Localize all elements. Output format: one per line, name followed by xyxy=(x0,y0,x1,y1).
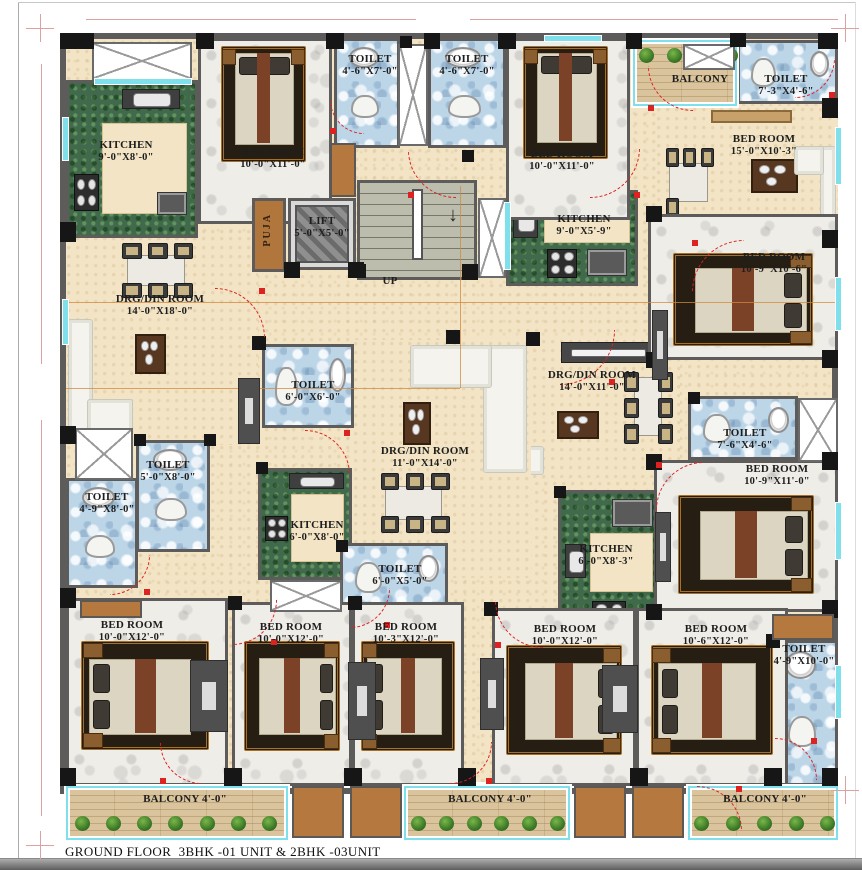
dining-table-set xyxy=(116,243,197,298)
toilet-wc xyxy=(751,58,776,87)
bed-pillow xyxy=(784,303,803,328)
window xyxy=(63,300,68,344)
door-jamb xyxy=(486,778,492,784)
bed-pillow xyxy=(320,664,333,694)
dining-chair xyxy=(701,148,714,167)
room-balcony-mid xyxy=(404,786,570,840)
column xyxy=(822,768,838,786)
window xyxy=(95,79,191,84)
room-toilet-a2 xyxy=(428,38,506,148)
shrub-icon xyxy=(439,816,454,831)
room-puja xyxy=(252,198,286,272)
bed-runner xyxy=(257,53,271,143)
door-jamb xyxy=(495,642,501,648)
shrub-icon xyxy=(75,816,90,831)
dimension-line xyxy=(845,14,846,42)
dimension-line xyxy=(41,64,42,364)
store-block xyxy=(632,786,684,838)
dining-chair xyxy=(431,516,450,533)
column xyxy=(326,33,344,49)
shrub-icon xyxy=(667,48,682,63)
column xyxy=(462,264,478,280)
wash-basin xyxy=(153,449,187,470)
closet-panel xyxy=(398,44,428,146)
closet-panel xyxy=(75,428,133,480)
door-jamb xyxy=(271,639,277,645)
column xyxy=(60,426,76,444)
double-bed xyxy=(244,641,340,751)
column xyxy=(284,262,300,278)
window xyxy=(836,503,841,559)
column xyxy=(498,33,516,49)
column xyxy=(60,33,94,49)
wash-basin xyxy=(418,555,438,582)
bedside-stool xyxy=(790,331,812,344)
bed-pillow xyxy=(662,669,679,699)
coffee-table xyxy=(135,334,166,374)
door-jamb xyxy=(259,288,265,294)
bedside-stool xyxy=(791,578,812,592)
room-toilet-e xyxy=(136,440,210,552)
bed-pillow xyxy=(784,273,803,298)
wash-basin xyxy=(445,47,481,68)
dining-chair xyxy=(658,424,673,443)
dining-chair xyxy=(122,283,141,298)
dining-chair xyxy=(381,473,400,490)
coffee-table xyxy=(557,411,599,439)
bed-pillow xyxy=(93,664,110,693)
shrub-icon xyxy=(639,48,654,63)
shrub-icon xyxy=(550,816,565,831)
room-lift xyxy=(288,198,356,270)
wardrobe-block xyxy=(602,665,638,733)
column xyxy=(60,222,76,242)
column xyxy=(688,392,700,404)
kitchen-counter xyxy=(157,192,187,215)
wash-basin xyxy=(785,651,816,679)
dining-chair xyxy=(406,516,425,533)
shrub-icon xyxy=(231,816,246,831)
door-jamb xyxy=(648,105,654,111)
shrub-icon xyxy=(137,816,152,831)
door-jamb xyxy=(384,622,390,628)
toilet-wc xyxy=(448,95,481,118)
column xyxy=(730,33,746,47)
door-jamb xyxy=(829,92,835,98)
dimension-line xyxy=(845,776,846,804)
shrub-icon xyxy=(168,816,183,831)
corner-sofa xyxy=(68,319,133,441)
shrub-icon xyxy=(522,816,537,831)
column xyxy=(818,33,838,49)
room-drg-din-a xyxy=(66,235,258,445)
toilet-wc xyxy=(275,367,297,406)
bed-runner xyxy=(135,659,155,733)
bedside-stool xyxy=(791,497,812,511)
kitchen-floor-inset xyxy=(590,533,653,593)
shrub-icon xyxy=(106,816,121,831)
room-toilet-a1 xyxy=(334,38,400,148)
shrub-icon xyxy=(262,816,277,831)
bed-runner xyxy=(702,663,722,738)
dimension-line xyxy=(66,302,838,303)
door-jamb xyxy=(408,192,414,198)
coffee-table xyxy=(751,159,798,193)
window xyxy=(836,666,841,718)
bedside-stool xyxy=(324,734,339,749)
closet-panel xyxy=(478,198,506,278)
dimension-line xyxy=(40,831,41,859)
store-block xyxy=(772,614,834,640)
store-block xyxy=(574,786,626,838)
column xyxy=(224,768,242,786)
shrub-icon xyxy=(494,816,509,831)
dining-chair xyxy=(381,516,400,533)
bedside-stool xyxy=(790,255,812,268)
column xyxy=(344,768,362,786)
wash-basin xyxy=(82,487,115,508)
window xyxy=(505,203,510,269)
door-jamb xyxy=(692,240,698,246)
bed-pillow xyxy=(785,549,803,576)
plan-title: GROUND FLOOR 3BHK -01 UNIT & 2BHK -03UNI… xyxy=(65,844,381,860)
dimension-line xyxy=(86,19,416,20)
column xyxy=(424,33,440,49)
shrub-icon xyxy=(757,816,772,831)
window-frame-right xyxy=(855,2,856,858)
column xyxy=(822,350,838,368)
door-jamb xyxy=(144,589,150,595)
kitchen-sink xyxy=(289,473,344,489)
stair-handrail xyxy=(412,189,422,260)
dining-table xyxy=(385,486,441,519)
dimension-line xyxy=(460,302,461,388)
door-jamb xyxy=(344,430,350,436)
gas-stove xyxy=(547,249,577,278)
coffee-table xyxy=(403,402,431,445)
column xyxy=(134,434,146,446)
window xyxy=(836,128,841,184)
dining-chair xyxy=(148,243,167,258)
bedside-stool xyxy=(524,49,538,65)
bedside-stool xyxy=(603,648,621,663)
toilet-wc xyxy=(703,414,730,443)
room-stairs: ↓ xyxy=(357,180,477,280)
dimension-line xyxy=(66,388,460,389)
dining-chair xyxy=(148,283,167,298)
door-jamb xyxy=(634,192,640,198)
shrub-icon xyxy=(411,816,426,831)
bedside-stool xyxy=(652,648,671,663)
dining-table-set xyxy=(374,473,452,533)
bed-runner xyxy=(555,663,574,738)
bed-runner xyxy=(559,53,573,141)
bed-runner xyxy=(401,658,416,733)
dimension-line xyxy=(460,186,461,302)
room-bedroom-a xyxy=(198,38,332,224)
column xyxy=(400,36,412,48)
closet-panel xyxy=(92,42,192,80)
bedside-stool xyxy=(83,643,103,658)
dining-chair xyxy=(174,283,193,298)
dining-chair xyxy=(624,372,639,391)
bed-runner xyxy=(284,658,299,733)
room-balcony-left xyxy=(66,786,288,840)
column xyxy=(60,768,76,786)
door-jamb xyxy=(656,462,662,468)
bed-runner xyxy=(735,511,757,579)
wardrobe xyxy=(711,110,793,123)
window xyxy=(545,36,601,41)
dining-chair xyxy=(174,243,193,258)
dining-table xyxy=(127,255,185,286)
dining-chair xyxy=(666,148,679,167)
window xyxy=(63,118,68,160)
bedside-stool xyxy=(291,49,305,65)
column xyxy=(554,486,566,498)
column xyxy=(252,336,266,350)
bedside-stool xyxy=(83,733,103,748)
wardrobe-block xyxy=(238,378,260,444)
column xyxy=(196,33,214,49)
store-block xyxy=(292,786,344,838)
window xyxy=(836,278,841,330)
shrub-icon xyxy=(820,816,835,831)
column xyxy=(60,588,76,608)
bed-pillow xyxy=(320,700,333,730)
kitchen-sink xyxy=(122,89,180,109)
bedside-stool xyxy=(324,643,339,658)
kitchen-counter xyxy=(587,249,627,276)
wardrobe-block xyxy=(348,662,376,740)
window-frame-top xyxy=(18,2,856,3)
column xyxy=(526,332,540,346)
bedside-stool xyxy=(652,738,671,753)
dining-chair xyxy=(683,148,696,167)
kitchen-sink xyxy=(565,544,587,578)
column xyxy=(256,462,268,474)
column xyxy=(626,33,642,49)
column xyxy=(446,330,460,344)
column xyxy=(646,604,662,620)
dining-table-set xyxy=(661,148,716,217)
room-kitchen-c xyxy=(258,468,352,580)
dining-chair xyxy=(431,473,450,490)
door-jamb xyxy=(160,778,166,784)
sofa-seat xyxy=(794,146,823,176)
gas-stove xyxy=(74,174,99,210)
bedside-stool xyxy=(603,738,621,753)
closet-panel xyxy=(270,580,342,612)
dimension-line xyxy=(470,19,838,20)
column xyxy=(822,98,838,118)
room-toilet-d xyxy=(688,396,798,460)
store-block xyxy=(330,143,356,197)
store-block xyxy=(350,786,402,838)
column xyxy=(822,452,838,470)
wardrobe-block xyxy=(652,310,668,380)
double-bed xyxy=(221,46,305,161)
column xyxy=(462,150,474,162)
wardrobe-block xyxy=(190,660,228,732)
dining-table xyxy=(669,163,708,201)
dining-chair xyxy=(406,473,425,490)
column xyxy=(630,768,648,786)
room-kitchen-a xyxy=(66,80,198,238)
gas-stove xyxy=(265,516,288,541)
shrub-icon xyxy=(789,816,804,831)
wash-basin xyxy=(768,407,789,433)
column xyxy=(204,434,216,446)
double-bed xyxy=(523,46,608,159)
dining-chair xyxy=(624,424,639,443)
store-block xyxy=(80,600,142,618)
shrub-icon xyxy=(467,816,482,831)
wardrobe-block xyxy=(655,512,671,582)
bed-pillow xyxy=(267,57,290,75)
bedside-stool xyxy=(362,643,377,658)
room-toilet-c xyxy=(262,344,354,428)
bedside-stool xyxy=(222,49,236,65)
wardrobe-block xyxy=(480,658,504,730)
bed-pillow xyxy=(569,56,592,74)
sofa-seat xyxy=(410,345,492,389)
kitchen-counter xyxy=(612,499,653,527)
toilet-wc xyxy=(355,562,382,593)
dining-chair xyxy=(624,398,639,417)
door-jamb xyxy=(736,786,742,792)
column xyxy=(336,540,348,552)
toilet-wc xyxy=(155,498,186,521)
column xyxy=(822,230,838,248)
dining-chair xyxy=(658,398,673,417)
dimension-line xyxy=(41,420,42,816)
window-frame-left xyxy=(18,2,19,858)
dining-chair xyxy=(122,243,141,258)
bed-pillow xyxy=(93,700,110,729)
bedside-stool xyxy=(593,49,607,65)
door-jamb xyxy=(609,379,615,385)
bed-pillow xyxy=(785,516,803,543)
column xyxy=(352,264,366,278)
wash-basin xyxy=(349,47,379,68)
door-jamb xyxy=(330,128,336,134)
double-bed xyxy=(651,645,774,755)
door-jamb xyxy=(811,738,817,744)
dimension-line xyxy=(40,14,41,42)
column xyxy=(646,206,662,222)
toilet-wc xyxy=(85,535,115,558)
shrub-icon xyxy=(200,816,215,831)
floor-plan-sheet: ↓ GROUND FLOOR 3BHK -01 UNIT & 2BHK -03U… xyxy=(0,0,862,870)
stairs-down-arrow: ↓ xyxy=(448,204,458,227)
bed-pillow xyxy=(662,705,679,735)
